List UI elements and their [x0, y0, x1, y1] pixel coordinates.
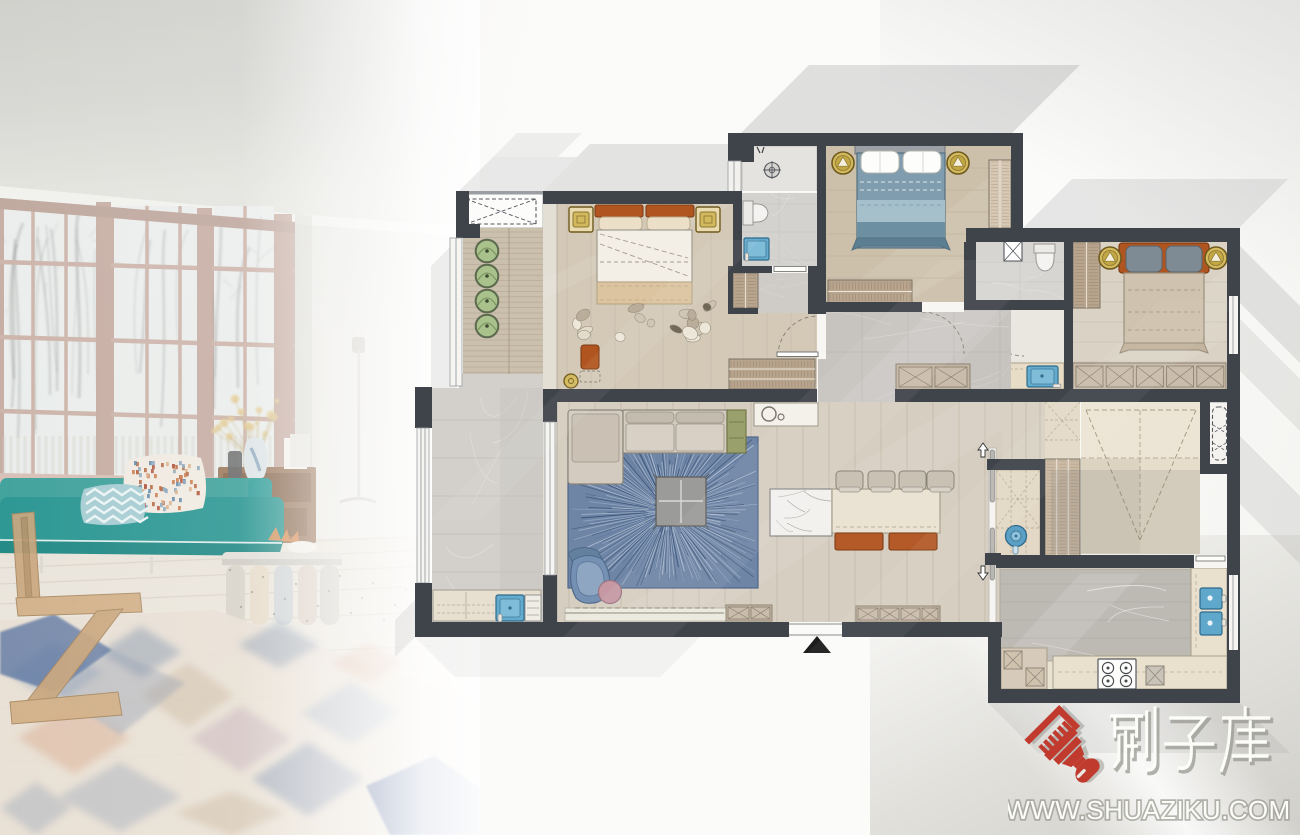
svg-text:WWW.SHUAZIKU.COM: WWW.SHUAZIKU.COM	[1008, 795, 1291, 825]
